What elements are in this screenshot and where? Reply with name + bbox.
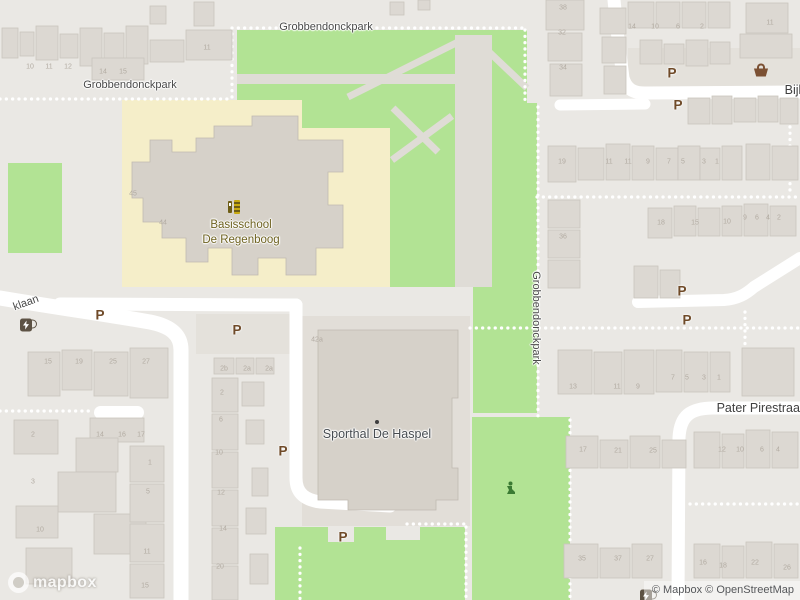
playground-icon xyxy=(504,481,518,495)
house-number: 5 xyxy=(685,375,689,382)
house-number: 2 xyxy=(220,390,224,397)
parking-marker: P xyxy=(338,530,347,545)
house-number: 27 xyxy=(646,556,654,563)
street-label: klaan xyxy=(12,293,41,313)
house-number: 2 xyxy=(777,215,781,222)
dot-icon xyxy=(375,420,379,424)
house-number: 42a xyxy=(311,337,323,344)
house-number: 2 xyxy=(700,24,704,31)
house-number: 6 xyxy=(760,447,764,454)
house-number: 20 xyxy=(216,564,224,571)
house-number: 3 xyxy=(31,479,35,486)
parking-marker: P xyxy=(677,284,686,299)
house-number: 2a xyxy=(243,366,251,373)
house-number: 16 xyxy=(118,432,126,439)
house-number: 2a xyxy=(265,366,273,373)
house-number: 22 xyxy=(751,560,759,567)
house-number: 37 xyxy=(614,556,622,563)
parking-marker: P xyxy=(673,98,682,113)
house-number: 2b xyxy=(220,366,228,373)
poi-label-sporthal-de-haspel: Sporthal De Haspel xyxy=(323,426,431,442)
house-number: 5 xyxy=(146,489,150,496)
house-number: 44 xyxy=(159,220,167,227)
house-number: 2 xyxy=(31,432,35,439)
house-number: 11 xyxy=(624,159,631,166)
street-label: Grobbendonckpark xyxy=(83,79,177,91)
ev-icon xyxy=(20,319,32,332)
house-number: 14 xyxy=(219,526,227,533)
school-icon xyxy=(227,200,241,214)
house-number: 10 xyxy=(723,219,731,226)
basket-icon xyxy=(753,64,769,77)
house-number: 18 xyxy=(719,563,727,570)
house-number: 1 xyxy=(717,375,721,382)
house-number: 32 xyxy=(558,30,566,37)
house-number: 25 xyxy=(109,359,117,366)
house-number: 5 xyxy=(681,159,685,166)
map-canvas[interactable]: GrobbendonckparkGrobbendonckparkGrobbend… xyxy=(0,0,800,600)
house-number: 11 xyxy=(203,45,210,52)
house-number: 11 xyxy=(143,549,150,556)
street-label: Pater Pirestraat xyxy=(717,401,800,415)
house-number: 14 xyxy=(99,69,107,76)
house-number: 6 xyxy=(676,24,680,31)
house-number: 14 xyxy=(628,24,636,31)
house-number: 4 xyxy=(766,215,770,222)
house-number: 16 xyxy=(699,560,707,567)
house-number: 6 xyxy=(219,417,223,424)
house-number: 17 xyxy=(579,447,587,454)
house-number: 9 xyxy=(646,159,650,166)
house-number: 10 xyxy=(36,527,44,534)
house-number: 1 xyxy=(148,460,152,467)
house-number: 26 xyxy=(783,565,791,572)
poi-label-basisschool-de-regenboog: Basisschool De Regenboog xyxy=(202,218,279,248)
house-number: 9 xyxy=(743,215,747,222)
house-number: 11 xyxy=(613,384,620,391)
parking-marker: P xyxy=(278,444,287,459)
house-number: 10 xyxy=(651,24,659,31)
house-number: 14 xyxy=(96,432,104,439)
house-number: 3 xyxy=(702,159,706,166)
parking-marker: P xyxy=(682,313,691,328)
house-number: 27 xyxy=(142,359,150,366)
parking-marker: P xyxy=(667,66,676,81)
house-number: 11 xyxy=(766,20,773,27)
house-number: 15 xyxy=(141,583,149,590)
house-number: 11 xyxy=(45,64,52,71)
house-number: 15 xyxy=(119,69,127,76)
house-number: 13 xyxy=(569,384,577,391)
house-number: 9 xyxy=(636,384,640,391)
house-number: 10 xyxy=(215,450,223,457)
street-label: Bijl xyxy=(785,83,800,97)
house-number: 12 xyxy=(217,490,225,497)
mapbox-logo-text: mapbox xyxy=(33,574,97,592)
mapbox-logo-icon xyxy=(8,572,29,593)
house-number: 25 xyxy=(649,448,657,455)
house-number: 19 xyxy=(558,159,566,166)
house-number: 12 xyxy=(64,64,72,71)
house-number: 34 xyxy=(559,65,567,72)
house-number: 6 xyxy=(755,215,759,222)
house-number: 17 xyxy=(137,432,145,439)
house-number: 7 xyxy=(667,159,671,166)
house-number: 12 xyxy=(718,447,726,454)
house-number: 38 xyxy=(559,5,567,12)
street-label: Grobbendonckpark xyxy=(279,21,373,33)
house-number: 35 xyxy=(578,556,586,563)
house-number: 15 xyxy=(44,359,52,366)
parking-marker: P xyxy=(232,323,241,338)
house-number: 10 xyxy=(736,447,744,454)
house-number: 3 xyxy=(702,375,706,382)
house-number: 15 xyxy=(691,220,699,227)
street-label: Grobbendonckpark xyxy=(530,271,542,365)
parking-marker: P xyxy=(95,308,104,323)
mapbox-logo[interactable]: mapbox xyxy=(8,572,97,593)
house-number: 19 xyxy=(75,359,83,366)
house-number: 10 xyxy=(26,64,34,71)
house-number: 11 xyxy=(605,159,612,166)
house-number: 21 xyxy=(614,448,622,455)
house-number: 7 xyxy=(671,375,675,382)
map-labels-layer: GrobbendonckparkGrobbendonckparkGrobbend… xyxy=(0,0,800,600)
house-number: 18 xyxy=(657,220,665,227)
house-number: 36 xyxy=(559,234,567,241)
map-attribution[interactable]: © Mapbox © OpenStreetMap xyxy=(644,581,800,600)
house-number: 4 xyxy=(776,447,780,454)
house-number: 45 xyxy=(129,191,137,198)
house-number: 1 xyxy=(715,159,719,166)
